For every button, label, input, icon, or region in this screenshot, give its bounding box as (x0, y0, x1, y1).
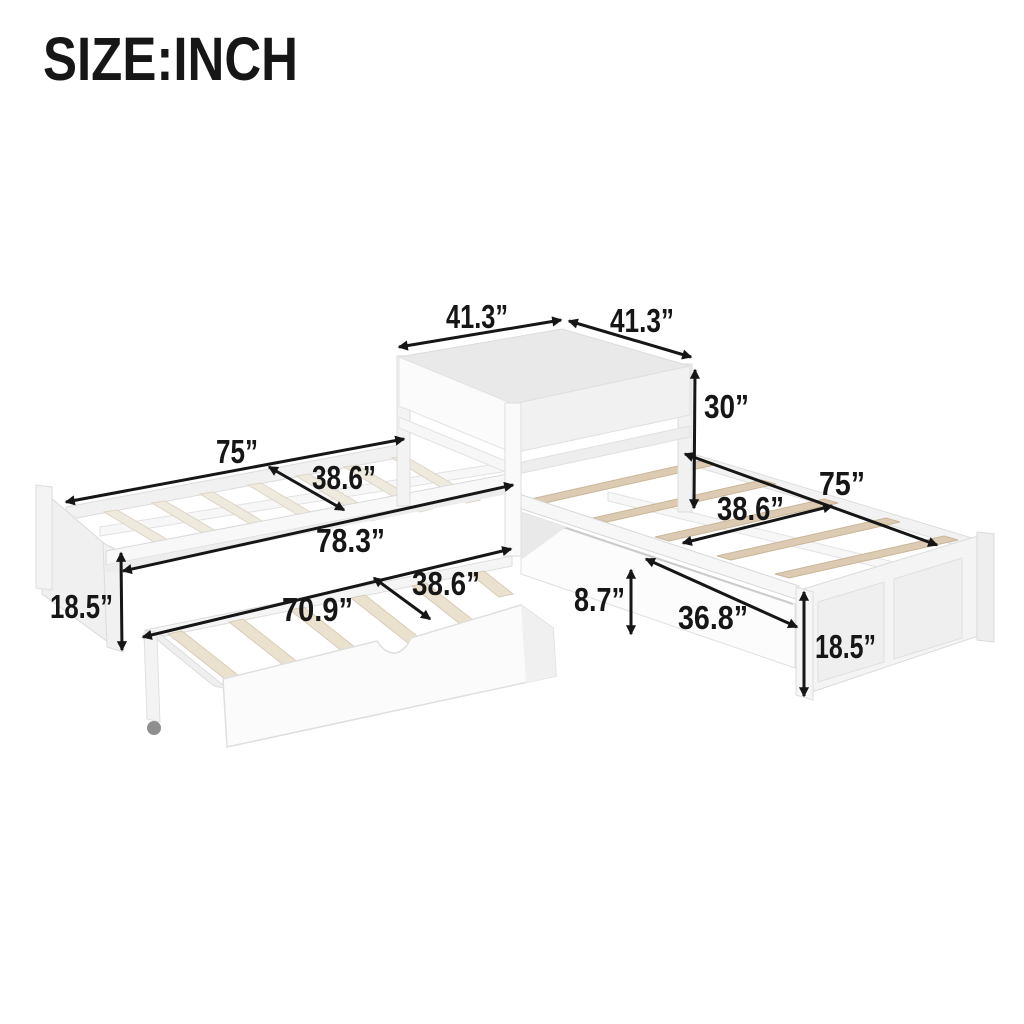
svg-text:75”: 75” (216, 433, 258, 470)
svg-text:38.6”: 38.6” (312, 459, 376, 496)
svg-text:38.6”: 38.6” (717, 490, 784, 527)
svg-text:41.3”: 41.3” (610, 302, 674, 339)
svg-text:38.6”: 38.6” (412, 565, 480, 602)
svg-text:36.8”: 36.8” (678, 599, 748, 636)
svg-text:8.7”: 8.7” (574, 581, 625, 618)
svg-text:SIZE:INCH: SIZE:INCH (43, 25, 298, 93)
svg-text:18.5”: 18.5” (815, 628, 876, 665)
svg-text:78.3”: 78.3” (316, 522, 385, 559)
svg-text:30”: 30” (704, 388, 749, 425)
svg-text:75”: 75” (819, 465, 865, 502)
svg-text:70.9”: 70.9” (282, 591, 353, 628)
svg-text:41.3”: 41.3” (446, 298, 508, 335)
svg-text:18.5”: 18.5” (50, 588, 113, 625)
